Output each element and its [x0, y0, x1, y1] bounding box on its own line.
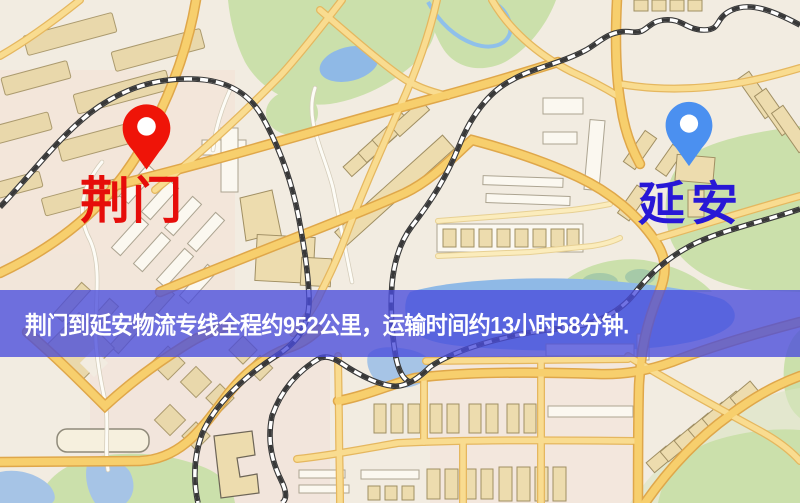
red-pin-shape	[123, 104, 171, 169]
blue-pin-icon	[663, 100, 715, 168]
blue-pin-shape	[666, 102, 713, 166]
red-pin-icon	[120, 102, 173, 172]
map-canvas	[0, 0, 800, 503]
route-info-banner: 荆门到延安物流专线全程约952公里，运输时间约13小时58分钟.	[0, 290, 800, 357]
destination-city-label: 延安	[638, 180, 744, 227]
route-info-text: 荆门到延安物流专线全程约952公里，运输时间约13小时58分钟.	[25, 306, 629, 341]
origin-city-label: 荆门	[80, 176, 184, 226]
map-screenshot: 荆门到延安物流专线全程约952公里，运输时间约13小时58分钟. 荆门 延安	[0, 0, 800, 503]
